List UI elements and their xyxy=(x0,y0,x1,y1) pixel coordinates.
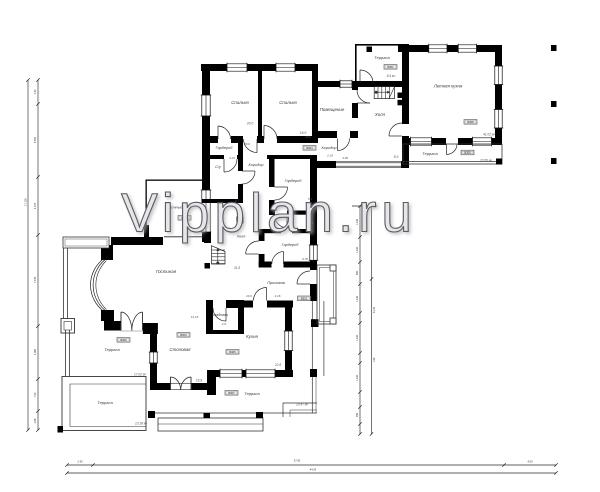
svg-text:17.100: 17.100 xyxy=(24,198,27,206)
svg-text:В301: В301 xyxy=(387,65,394,69)
svg-text:Летняя кухня: Летняя кухня xyxy=(433,84,463,89)
svg-text:Кладовая: Кладовая xyxy=(212,313,228,317)
svg-text:2.36: 2.36 xyxy=(77,459,83,463)
svg-text:Холл: Холл xyxy=(374,112,386,117)
svg-text:20.0: 20.0 xyxy=(246,122,254,126)
svg-text:20.0: 20.0 xyxy=(243,142,250,146)
svg-text:16.8: 16.8 xyxy=(196,379,202,383)
svg-text:Терраса: Терраса xyxy=(374,55,390,60)
svg-text:1.400: 1.400 xyxy=(356,334,359,341)
svg-text:Столовая: Столовая xyxy=(169,347,191,352)
svg-text:900: 900 xyxy=(356,412,359,417)
svg-text:17.02 м²: 17.02 м² xyxy=(134,373,147,377)
svg-text:В309: В309 xyxy=(464,151,471,155)
svg-text:Спальня: Спальня xyxy=(231,100,249,105)
svg-text:7.90: 7.90 xyxy=(34,392,37,397)
svg-text:Помещение: Помещение xyxy=(320,107,345,112)
svg-text:16.0: 16.0 xyxy=(305,135,311,139)
svg-text:22.8: 22.8 xyxy=(274,363,281,367)
svg-text:1.400: 1.400 xyxy=(356,246,359,253)
svg-text:1.98: 1.98 xyxy=(373,357,376,362)
svg-text:Гардероб: Гардероб xyxy=(216,146,234,150)
svg-text:В305: В305 xyxy=(229,350,236,354)
svg-text:В308: В308 xyxy=(467,120,474,124)
svg-text:В303: В303 xyxy=(180,333,187,337)
svg-text:13.18 м²: 13.18 м² xyxy=(135,422,148,426)
svg-text:1.480: 1.480 xyxy=(34,348,37,355)
svg-text:В304: В304 xyxy=(306,146,313,150)
svg-text:1.400: 1.400 xyxy=(356,295,359,302)
svg-text:Коридор: Коридор xyxy=(322,146,337,150)
svg-text:Гардероб: Гардероб xyxy=(282,243,300,247)
svg-text:2.6: 2.6 xyxy=(221,322,227,326)
svg-text:10.47 м²: 10.47 м² xyxy=(296,403,309,407)
svg-text:31.8: 31.8 xyxy=(234,266,240,270)
svg-text:4.36: 4.36 xyxy=(342,156,348,160)
svg-text:Терраса: Терраса xyxy=(244,391,260,396)
svg-text:1.88: 1.88 xyxy=(34,418,37,423)
svg-text:Vipplan.ru: Vipplan.ru xyxy=(121,182,417,244)
svg-text:Терраса: Терраса xyxy=(422,151,438,156)
svg-text:4.470: 4.470 xyxy=(34,202,37,209)
svg-text:9.590: 9.590 xyxy=(34,136,37,143)
svg-text:2.01: 2.01 xyxy=(228,156,235,160)
svg-text:1.400: 1.400 xyxy=(356,374,359,381)
svg-text:Терраса: Терраса xyxy=(97,400,113,405)
svg-text:4.26: 4.26 xyxy=(275,294,281,298)
svg-text:6.76: 6.76 xyxy=(302,257,308,261)
svg-text:В306: В306 xyxy=(120,338,127,342)
svg-text:44.03: 44.03 xyxy=(310,467,317,471)
svg-text:Гостиная: Гостиная xyxy=(156,269,177,274)
svg-text:600: 600 xyxy=(356,270,359,275)
svg-text:Прихожая: Прихожая xyxy=(267,281,285,285)
svg-text:Кухня: Кухня xyxy=(246,334,258,339)
svg-text:1.40: 1.40 xyxy=(34,89,37,94)
svg-text:8.4 м²: 8.4 м² xyxy=(387,74,397,78)
svg-text:Спальня: Спальня xyxy=(279,100,297,105)
svg-text:7.145: 7.145 xyxy=(34,276,37,283)
svg-text:В310: В310 xyxy=(301,297,308,301)
svg-text:Терраса: Терраса xyxy=(104,347,120,352)
svg-text:В307: В307 xyxy=(228,391,235,395)
svg-text:4.60: 4.60 xyxy=(527,459,533,463)
svg-text:20.0: 20.0 xyxy=(245,294,252,298)
svg-text:37.60: 37.60 xyxy=(294,459,301,463)
svg-text:6.140: 6.140 xyxy=(373,306,376,313)
svg-text:41.02 м²: 41.02 м² xyxy=(483,133,496,137)
svg-text:13.18: 13.18 xyxy=(191,315,199,319)
svg-text:Коридор: Коридор xyxy=(249,163,264,167)
svg-text:10.50 м²: 10.50 м² xyxy=(480,159,493,163)
svg-text:2.16: 2.16 xyxy=(326,154,333,158)
svg-text:8.9: 8.9 xyxy=(394,155,399,159)
